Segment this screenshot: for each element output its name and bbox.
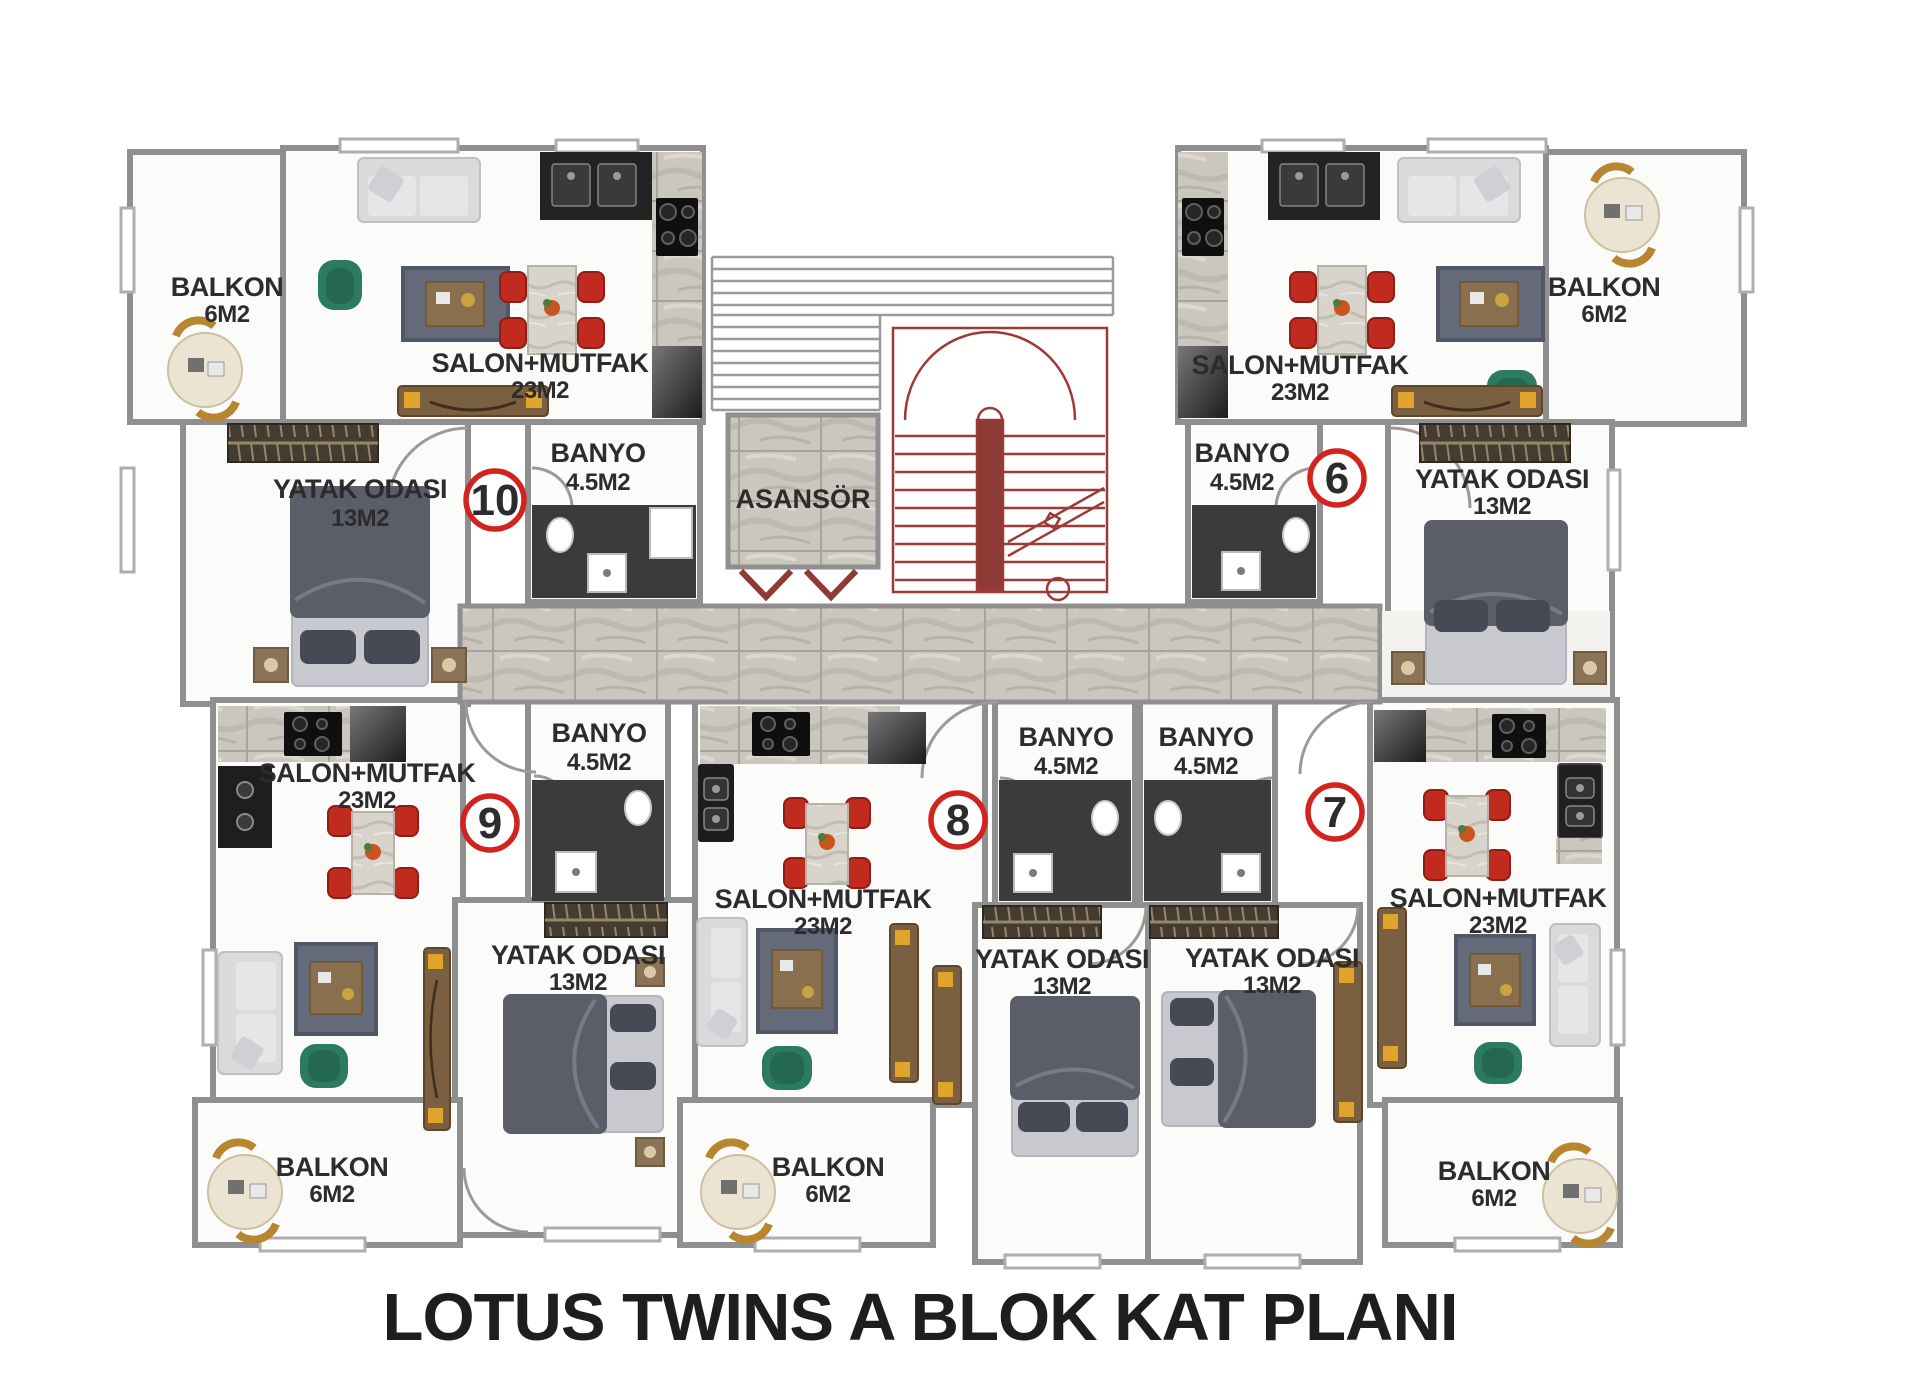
wardrobe <box>545 903 667 937</box>
apt9-salon-area: 23M2 <box>338 787 396 814</box>
bed <box>1162 990 1316 1128</box>
apt6-salon-area: 23M2 <box>1271 379 1329 406</box>
apt9-salon-label: SALON+MUTFAK <box>259 758 477 788</box>
wardrobe <box>1150 906 1278 938</box>
wardrobe <box>228 424 378 462</box>
bathroom-interior <box>1144 780 1271 901</box>
wardrobe <box>1420 424 1570 462</box>
bathroom-interior <box>532 505 696 598</box>
apt10-balcony-area: 6M2 <box>204 301 249 328</box>
rug-coffee-table <box>1438 268 1543 340</box>
apt7-bedroom-area: 13M2 <box>1243 972 1301 999</box>
bathroom-interior <box>532 780 664 901</box>
apt10-bedroom-area: 13M2 <box>331 505 389 532</box>
apt6-bedroom-label: YATAK ODASI <box>1415 464 1589 494</box>
apt10-number: 10 <box>471 476 520 525</box>
sofa <box>1398 158 1520 222</box>
rug-coffee-table <box>296 944 376 1034</box>
tv-unit <box>1392 386 1542 416</box>
apt7-balcony-area: 6M2 <box>1471 1185 1516 1212</box>
tv-unit <box>424 948 450 1130</box>
apt8-bathroom-label: BANYO <box>1018 722 1113 752</box>
apt8-salon-area: 23M2 <box>794 913 852 940</box>
apt7-salon-label: SALON+MUTFAK <box>1390 883 1608 913</box>
apt10-salon-area: 23M2 <box>511 377 569 404</box>
bathroom-interior <box>999 780 1131 901</box>
apt9-balcony-label: BALKON <box>276 1152 389 1182</box>
apt7-bedroom-label: YATAK ODASI <box>1185 943 1359 973</box>
sofa <box>358 158 480 222</box>
staircase-icon <box>893 328 1107 600</box>
wardrobe <box>983 906 1101 938</box>
sofa <box>1550 924 1600 1046</box>
elevator-door-icon <box>741 571 791 597</box>
apt6-salon-label: SALON+MUTFAK <box>1192 350 1410 380</box>
apt9-bathroom-label: BANYO <box>551 718 646 748</box>
elevator: ASANSÖR <box>728 415 878 597</box>
bed <box>1010 996 1140 1156</box>
apt8-bathroom-area: 4.5M2 <box>1034 753 1098 780</box>
armchair-green <box>762 1046 812 1090</box>
elevator-door-icon <box>806 571 856 597</box>
apt10-bedroom-label: YATAK ODASI <box>273 474 447 504</box>
apt9-number: 9 <box>478 799 502 848</box>
apt6-bedroom-area: 13M2 <box>1473 493 1531 520</box>
apt7-salon-area: 23M2 <box>1469 912 1527 939</box>
apt10-bathroom-area: 4.5M2 <box>566 469 630 496</box>
apt10-salon-label: SALON+MUTFAK <box>432 348 650 378</box>
armchair-green <box>318 260 362 310</box>
apt6-bathroom-area: 4.5M2 <box>1210 469 1274 496</box>
apt8-salon-label: SALON+MUTFAK <box>715 884 933 914</box>
floor-plan-drawing: ASANSÖR <box>0 0 1920 1390</box>
apt7-bathroom-area: 4.5M2 <box>1174 753 1238 780</box>
apt8-bedroom-area: 13M2 <box>1033 973 1091 1000</box>
apt10-balcony-label: BALKON <box>171 272 284 302</box>
apt9-number-badge: 9 <box>463 796 517 850</box>
plan-title: LOTUS TWINS A BLOK KAT PLANI <box>383 1280 1458 1355</box>
apt6-number: 6 <box>1325 454 1349 503</box>
elevator-label: ASANSÖR <box>735 484 870 514</box>
floor-plan-page: ASANSÖR <box>0 0 1920 1390</box>
sofa <box>218 952 282 1074</box>
apt9-bedroom-label: YATAK ODASI <box>491 940 665 970</box>
apt7-number: 7 <box>1323 788 1347 837</box>
sofa <box>697 918 747 1046</box>
corridor <box>460 606 1380 702</box>
apt8-number: 8 <box>946 796 970 845</box>
apt8-balcony-area: 6M2 <box>805 1181 850 1208</box>
rug-coffee-table <box>403 268 508 340</box>
apt10-bathroom-label: BANYO <box>550 438 645 468</box>
apt8-bedroom-label: YATAK ODASI <box>975 944 1149 974</box>
apt9-bedroom-area: 13M2 <box>549 969 607 996</box>
apt7-number-badge: 7 <box>1308 785 1362 839</box>
apt8-balcony-label: BALKON <box>772 1152 885 1182</box>
apt6-number-badge: 6 <box>1310 451 1364 505</box>
apt10-number-badge: 10 <box>466 471 524 529</box>
apt8-number-badge: 8 <box>931 793 985 847</box>
rug-coffee-table <box>758 930 836 1032</box>
rug-coffee-table <box>1456 936 1534 1024</box>
armchair-green <box>1474 1042 1522 1084</box>
apt9-bathroom-area: 4.5M2 <box>567 749 631 776</box>
apt6-balcony-label: BALKON <box>1548 272 1661 302</box>
apt9-balcony-area: 6M2 <box>309 1181 354 1208</box>
apt7-bathroom-label: BANYO <box>1158 722 1253 752</box>
apt7-balcony-label: BALKON <box>1438 1156 1551 1186</box>
armchair-green <box>300 1044 348 1088</box>
apt6-balcony-area: 6M2 <box>1581 301 1626 328</box>
apt6-bathroom-label: BANYO <box>1194 438 1289 468</box>
bathroom-interior <box>1192 505 1316 598</box>
